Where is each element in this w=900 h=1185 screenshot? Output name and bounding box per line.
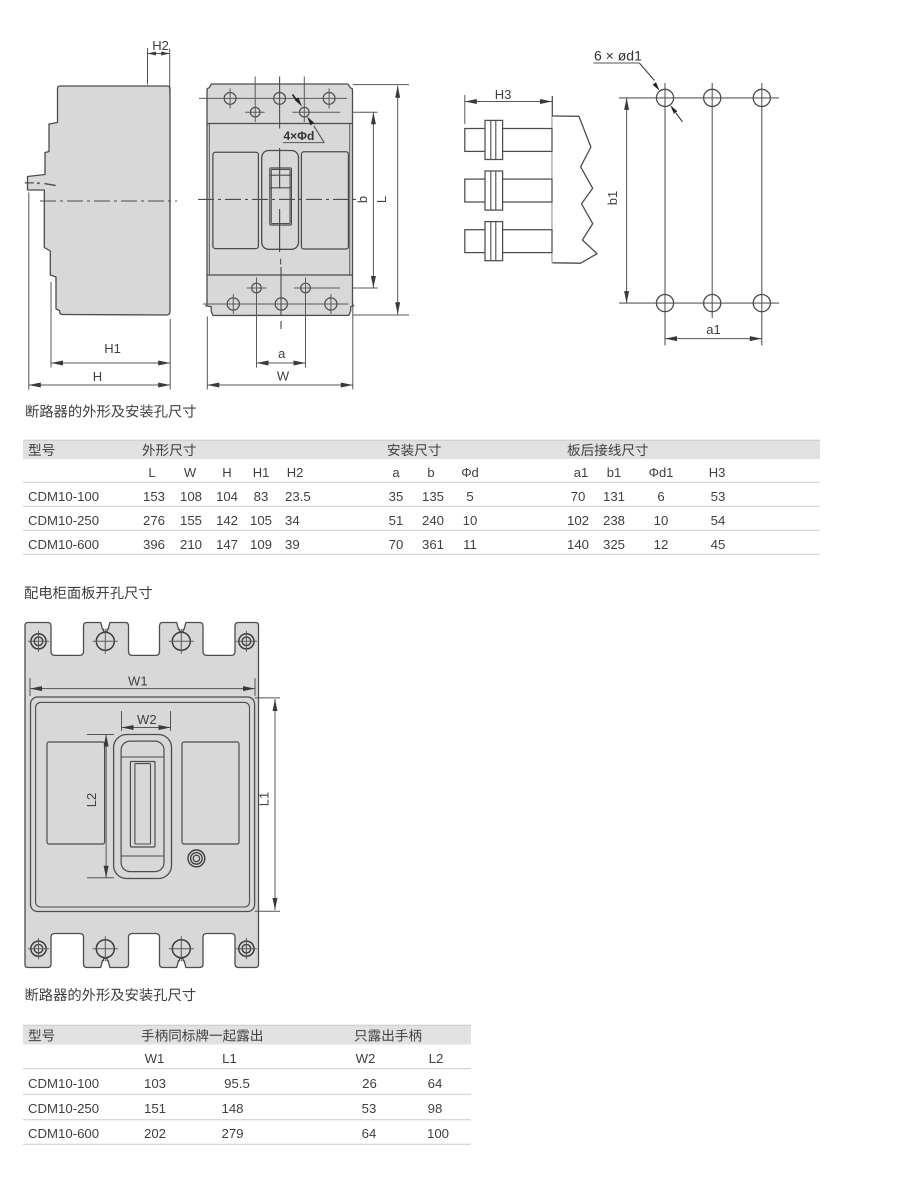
svg-text:51: 51 [389, 513, 404, 528]
svg-text:70: 70 [389, 537, 404, 552]
svg-text:135: 135 [422, 489, 444, 504]
svg-text:95.5: 95.5 [224, 1076, 250, 1091]
svg-text:70: 70 [571, 489, 586, 504]
svg-text:54: 54 [711, 513, 726, 528]
svg-text:23.5: 23.5 [285, 489, 311, 504]
svg-text:325: 325 [603, 537, 625, 552]
svg-text:W: W [277, 369, 290, 384]
svg-text:W: W [184, 465, 197, 480]
svg-text:11: 11 [463, 537, 477, 552]
svg-text:CDM10-100: CDM10-100 [28, 1076, 99, 1091]
svg-text:CDM10-250: CDM10-250 [28, 1101, 99, 1116]
svg-text:H1: H1 [104, 341, 121, 356]
svg-text:396: 396 [143, 537, 165, 552]
svg-text:W1: W1 [145, 1051, 165, 1066]
svg-text:W2: W2 [356, 1051, 376, 1066]
svg-text:L1: L1 [222, 1051, 237, 1066]
svg-text:64: 64 [362, 1126, 377, 1141]
svg-text:CDM10-600: CDM10-600 [28, 1126, 99, 1141]
svg-text:10: 10 [654, 513, 669, 528]
svg-text:64: 64 [428, 1076, 443, 1091]
svg-text:153: 153 [143, 489, 165, 504]
svg-text:W2: W2 [137, 712, 157, 727]
svg-text:100: 100 [427, 1126, 449, 1141]
svg-text:10: 10 [463, 513, 478, 528]
svg-text:H2: H2 [287, 465, 304, 480]
svg-text:131: 131 [603, 489, 625, 504]
svg-text:238: 238 [603, 513, 625, 528]
svg-text:a1: a1 [574, 465, 588, 480]
svg-text:H3: H3 [495, 87, 512, 102]
svg-text:98: 98 [428, 1101, 443, 1116]
svg-text:b: b [355, 196, 370, 203]
svg-text:L2: L2 [84, 793, 99, 807]
svg-text:53: 53 [362, 1101, 377, 1116]
svg-text:140: 140 [567, 537, 589, 552]
svg-text:12: 12 [654, 537, 669, 552]
svg-text:6 × ød1: 6 × ød1 [594, 48, 642, 64]
svg-text:a: a [278, 346, 286, 361]
svg-text:102: 102 [567, 513, 589, 528]
svg-text:a: a [392, 465, 400, 480]
svg-text:142: 142 [216, 513, 238, 528]
svg-text:b1: b1 [607, 465, 621, 480]
svg-text:279: 279 [221, 1126, 243, 1141]
svg-text:L1: L1 [257, 792, 272, 806]
svg-text:b1: b1 [605, 191, 620, 205]
svg-text:148: 148 [221, 1101, 243, 1116]
svg-text:H: H [222, 465, 231, 480]
svg-text:H: H [93, 369, 102, 384]
svg-text:6: 6 [657, 489, 664, 504]
svg-text:L2: L2 [429, 1051, 444, 1066]
svg-text:35: 35 [389, 489, 404, 504]
svg-text:26: 26 [362, 1076, 377, 1091]
svg-text:Φd: Φd [461, 465, 479, 480]
svg-text:147: 147 [216, 537, 238, 552]
svg-text:155: 155 [180, 513, 202, 528]
svg-text:361: 361 [422, 537, 444, 552]
svg-text:CDM10-250: CDM10-250 [28, 513, 99, 528]
svg-text:53: 53 [711, 489, 726, 504]
svg-text:109: 109 [250, 537, 272, 552]
svg-text:210: 210 [180, 537, 202, 552]
svg-text:104: 104 [216, 489, 238, 504]
svg-text:W1: W1 [128, 674, 148, 689]
svg-text:a1: a1 [706, 322, 720, 337]
svg-text:L: L [148, 465, 155, 480]
svg-text:H1: H1 [253, 465, 270, 480]
svg-text:5: 5 [466, 489, 473, 504]
svg-text:276: 276 [143, 513, 165, 528]
svg-text:45: 45 [711, 537, 726, 552]
svg-text:202: 202 [144, 1126, 166, 1141]
svg-text:103: 103 [144, 1076, 166, 1091]
svg-text:4×Φd: 4×Φd [284, 129, 315, 143]
svg-text:240: 240 [422, 513, 444, 528]
svg-text:151: 151 [144, 1101, 166, 1116]
svg-text:39: 39 [285, 537, 300, 552]
svg-text:CDM10-600: CDM10-600 [28, 537, 99, 552]
svg-text:108: 108 [180, 489, 202, 504]
svg-text:105: 105 [250, 513, 272, 528]
svg-text:CDM10-100: CDM10-100 [28, 489, 99, 504]
svg-text:83: 83 [254, 489, 269, 504]
svg-text:H3: H3 [709, 465, 726, 480]
svg-text:b: b [427, 465, 434, 480]
svg-text:L: L [374, 196, 389, 203]
svg-text:H2: H2 [152, 38, 169, 53]
svg-text:34: 34 [285, 513, 300, 528]
svg-text:Φd1: Φd1 [649, 465, 674, 480]
